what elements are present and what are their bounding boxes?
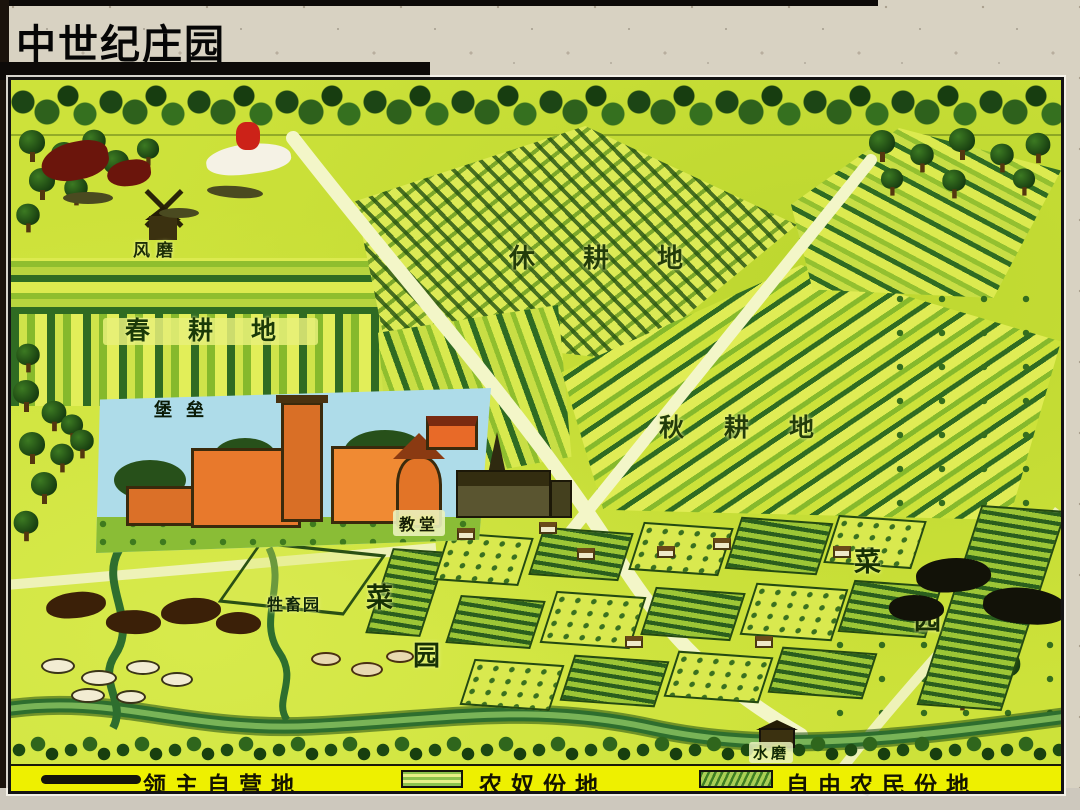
sheep-icon xyxy=(126,660,160,675)
church-tower xyxy=(550,480,572,518)
legend-swatch-free-peasant xyxy=(699,770,773,788)
tree-icon xyxy=(19,130,45,162)
sheep-icon xyxy=(161,672,193,687)
tree-icon xyxy=(31,472,57,504)
legend-label-free-peasant: 自由农民份地 xyxy=(786,766,978,794)
tree-icon xyxy=(1013,168,1035,195)
tree-icon xyxy=(949,128,975,160)
tree-icon xyxy=(16,204,39,233)
sheep-icon xyxy=(81,670,117,686)
church-nave xyxy=(456,470,551,518)
house-icon xyxy=(755,636,773,648)
spring-field-label: 春耕地 xyxy=(103,318,318,345)
castle-main-tower xyxy=(281,402,323,522)
house-icon xyxy=(577,548,595,560)
tree-icon xyxy=(14,511,39,541)
windmill-label: 风磨 xyxy=(133,236,179,261)
manor-map: 风磨 春耕地 休耕地 秋耕地 堡垒 教堂 牲畜园 xyxy=(8,77,1064,794)
legend-swatch-serf xyxy=(401,770,463,788)
garden-plot xyxy=(640,587,746,641)
house-icon xyxy=(539,522,557,534)
tree-icon xyxy=(910,144,933,173)
garden-plot xyxy=(560,655,670,708)
house-icon xyxy=(457,528,475,540)
rider-icon xyxy=(236,122,260,150)
hound-icon xyxy=(159,208,199,218)
legend-label-demesne: 领主自营地 xyxy=(143,766,303,794)
slide: 中世纪庄园 xyxy=(0,0,1080,810)
garden-plot xyxy=(740,583,849,641)
church-label: 教堂 xyxy=(393,510,445,536)
sheep-icon xyxy=(116,690,146,704)
hound-icon xyxy=(63,192,113,204)
livestock-pen-label: 牲畜园 xyxy=(267,591,321,615)
tree-icon xyxy=(990,144,1013,173)
house-icon xyxy=(713,538,731,550)
water-mill-label: 水磨 xyxy=(749,742,793,763)
tree-icon xyxy=(70,430,93,459)
tree-icon xyxy=(1026,133,1051,163)
tree-icon xyxy=(942,170,965,199)
castle-wall xyxy=(126,486,196,526)
fallow-field-label: 休耕地 xyxy=(509,238,731,275)
house-icon xyxy=(625,636,643,648)
house-icon xyxy=(833,546,851,558)
bull-icon xyxy=(889,595,944,621)
tree-icon xyxy=(19,432,45,464)
autumn-field-label: 秋耕地 xyxy=(659,408,854,444)
pig-icon xyxy=(311,652,341,666)
tree-icon xyxy=(869,130,895,162)
tree-icon xyxy=(16,344,39,373)
cross-road xyxy=(556,160,871,550)
veg-garden-left-label-bottom: 园 xyxy=(413,634,440,673)
tree-icon xyxy=(881,168,903,195)
garden-plot xyxy=(725,517,834,575)
pig-icon xyxy=(351,662,383,677)
veg-garden-left-label-top: 菜 xyxy=(366,576,393,615)
church-spire xyxy=(488,432,506,474)
legend-label-serf: 农奴份地 xyxy=(479,766,607,794)
castle-label: 堡垒 xyxy=(154,396,218,422)
map-legend: 领主自营地 农奴份地 自由农民份地 xyxy=(11,764,1061,793)
sheep-icon xyxy=(71,688,105,703)
garden-plot xyxy=(664,651,774,704)
sheep-icon xyxy=(41,658,75,674)
house-icon xyxy=(657,546,675,558)
bush-band xyxy=(11,736,1061,764)
garden-plot xyxy=(768,647,878,700)
veg-garden-right-label-top: 菜 xyxy=(854,540,881,579)
slide-top-border xyxy=(0,0,878,6)
garden-plot xyxy=(460,659,565,711)
garden-plot xyxy=(445,595,546,649)
tree-icon xyxy=(13,380,39,412)
pig-icon xyxy=(386,650,414,663)
legend-swatch-demesne xyxy=(41,775,141,784)
